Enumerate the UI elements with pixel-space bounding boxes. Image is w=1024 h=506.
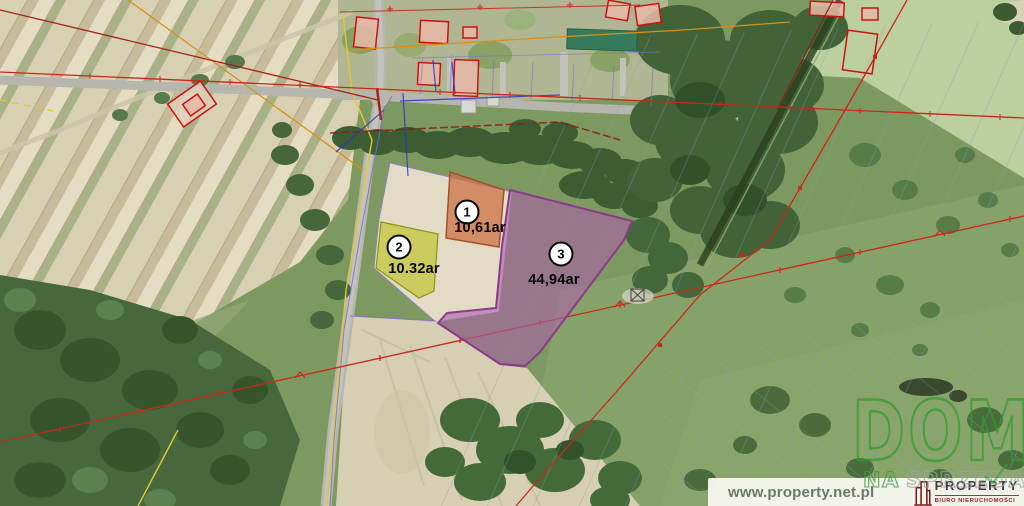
brand-logo: PROPERTY BIURO NIERUCHOMOŚCI	[914, 478, 1019, 506]
aerial-map	[0, 0, 1024, 506]
listing-photo: 1 10,61ar 2 10.32ar 3 44,94ar www.proper…	[0, 0, 1024, 506]
website-url: www.property.net.pl	[728, 484, 874, 501]
parcel-3-number-badge: 3	[549, 242, 574, 267]
parcel-1-area-label: 10,61ar	[454, 220, 505, 236]
brand-tagline: BIURO NIERUCHOMOŚCI	[935, 495, 1019, 504]
green-roof-barn	[567, 29, 638, 51]
parcel-3-area-label: 44,94ar	[528, 272, 579, 288]
brand-name: PROPERTY	[935, 478, 1019, 493]
parcel-2-area-label: 10.32ar	[388, 261, 439, 277]
footer-bar: www.property.net.pl PROPERTY BIURO NIERU…	[708, 478, 1024, 506]
building-icon	[914, 479, 932, 506]
parcel-2-number-badge: 2	[387, 235, 412, 260]
power-pylon	[622, 288, 654, 304]
